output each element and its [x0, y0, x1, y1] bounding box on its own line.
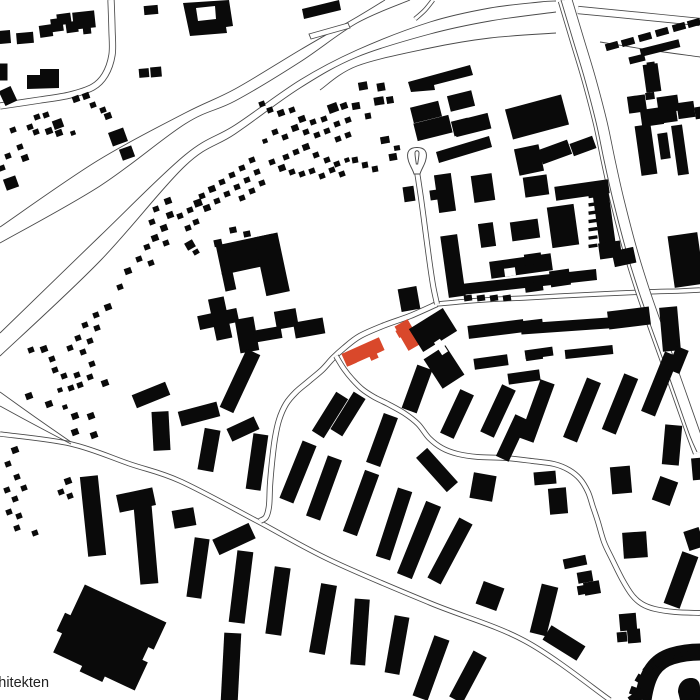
svg-text:chitekten: chitekten — [0, 675, 49, 691]
